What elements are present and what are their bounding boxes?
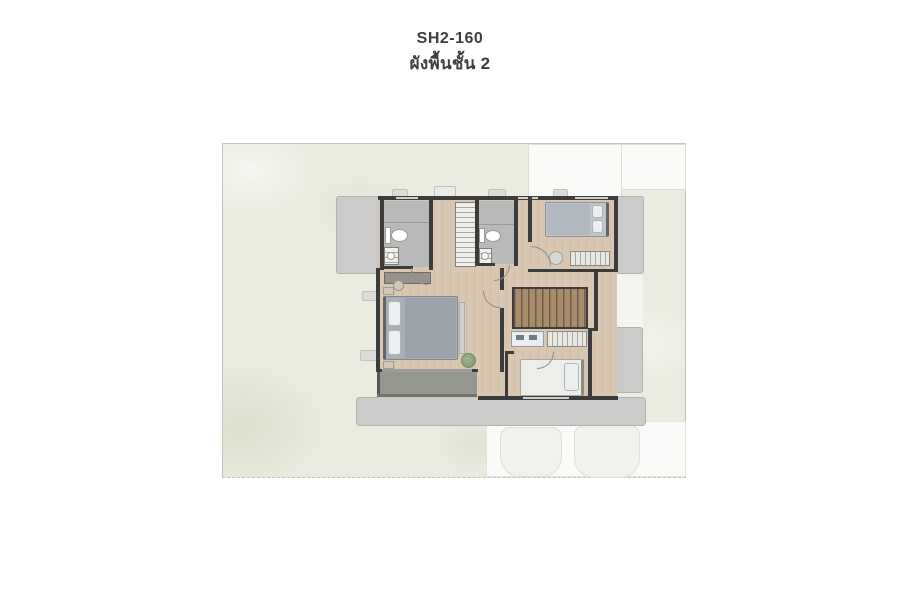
monitor-1 bbox=[516, 335, 524, 340]
wall-segment bbox=[376, 369, 382, 372]
floor-plan bbox=[0, 0, 900, 600]
ledge-tab-left-1 bbox=[362, 291, 377, 301]
toilet-2-bowl bbox=[485, 230, 501, 242]
awning-bottom bbox=[356, 397, 646, 426]
wall-segment bbox=[376, 268, 380, 372]
wall-segment bbox=[383, 266, 413, 269]
wall-segment bbox=[514, 196, 518, 266]
toilet-1-bowl bbox=[391, 229, 408, 242]
wall-segment bbox=[380, 196, 384, 270]
master-blanket bbox=[405, 298, 456, 358]
wall-segment bbox=[614, 196, 618, 272]
wall-segment bbox=[528, 269, 618, 272]
sink-2 bbox=[481, 252, 489, 260]
storage-shelf bbox=[547, 331, 587, 347]
dresser-stool bbox=[393, 280, 404, 291]
plant bbox=[461, 353, 476, 368]
sink-1 bbox=[387, 252, 395, 260]
wall-segment bbox=[475, 196, 479, 266]
paved-area-corner bbox=[621, 144, 686, 190]
bedroom3-pillow bbox=[564, 363, 579, 391]
bedroom2-blanket bbox=[547, 204, 590, 235]
wall-segment bbox=[505, 351, 508, 397]
shower-partition-2 bbox=[478, 224, 515, 225]
wall-segment bbox=[500, 308, 504, 372]
balcony-rail bbox=[377, 394, 477, 397]
window-wall-balcony bbox=[376, 369, 478, 372]
wall-segment bbox=[477, 263, 495, 266]
shower-partition-1 bbox=[383, 222, 430, 223]
wall-segment bbox=[505, 351, 514, 354]
bed-bench bbox=[459, 302, 465, 354]
car-1 bbox=[500, 427, 562, 477]
window-segment bbox=[396, 197, 418, 199]
master-pillow-1 bbox=[388, 301, 401, 326]
roof-overhang-left bbox=[336, 196, 384, 274]
wall-segment bbox=[429, 196, 433, 270]
monitor-2 bbox=[529, 335, 537, 340]
wall-segment bbox=[588, 331, 592, 399]
wall-segment bbox=[472, 369, 478, 372]
roof-overhang-right-top bbox=[616, 196, 644, 274]
linen-closet bbox=[455, 202, 476, 267]
car-2 bbox=[574, 425, 640, 478]
staircase bbox=[512, 287, 588, 329]
window-segment bbox=[575, 197, 608, 199]
bedroom2-pillow-1 bbox=[592, 205, 603, 218]
bedroom2-pillow-2 bbox=[592, 220, 603, 233]
wall-segment bbox=[528, 196, 532, 242]
nightstand-1 bbox=[383, 287, 394, 295]
bedroom2-desk bbox=[570, 251, 610, 266]
master-pillow-2 bbox=[388, 330, 401, 355]
wall-segment bbox=[594, 269, 598, 331]
nightstand-2 bbox=[383, 361, 394, 369]
ledge-tab-left-2 bbox=[360, 350, 377, 361]
window-segment bbox=[523, 397, 569, 399]
bedroom2-chair bbox=[549, 251, 563, 265]
